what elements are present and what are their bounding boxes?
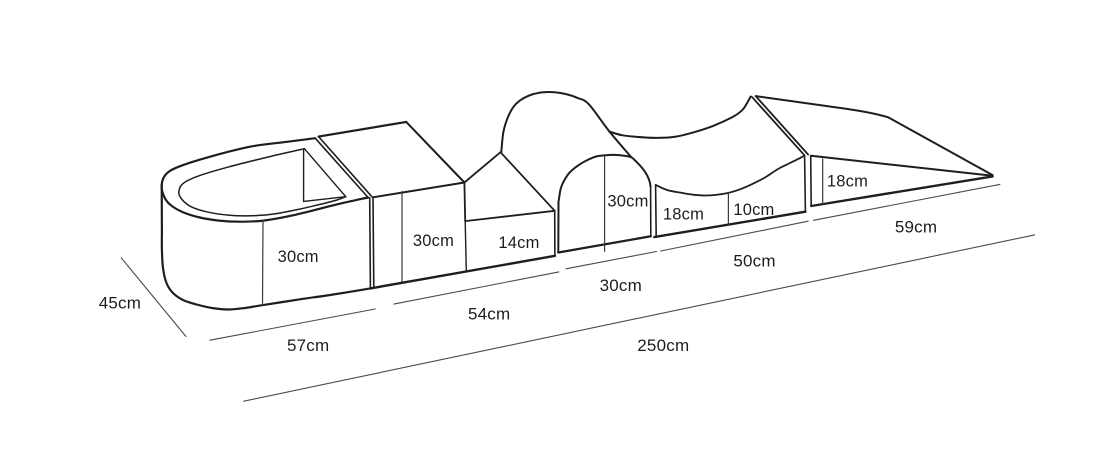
- svg-text:30cm: 30cm: [607, 193, 648, 211]
- svg-text:54cm: 54cm: [468, 305, 510, 324]
- svg-text:30cm: 30cm: [413, 232, 454, 250]
- svg-text:14cm: 14cm: [498, 234, 539, 252]
- svg-text:57cm: 57cm: [287, 336, 329, 355]
- svg-text:50cm: 50cm: [733, 252, 775, 271]
- svg-text:30cm: 30cm: [600, 276, 642, 295]
- svg-text:18cm: 18cm: [663, 206, 704, 224]
- svg-text:10cm: 10cm: [733, 201, 774, 219]
- svg-text:30cm: 30cm: [278, 248, 319, 266]
- svg-text:45cm: 45cm: [99, 294, 141, 313]
- svg-text:59cm: 59cm: [895, 218, 937, 237]
- svg-text:18cm: 18cm: [827, 173, 868, 191]
- svg-text:250cm: 250cm: [637, 336, 689, 355]
